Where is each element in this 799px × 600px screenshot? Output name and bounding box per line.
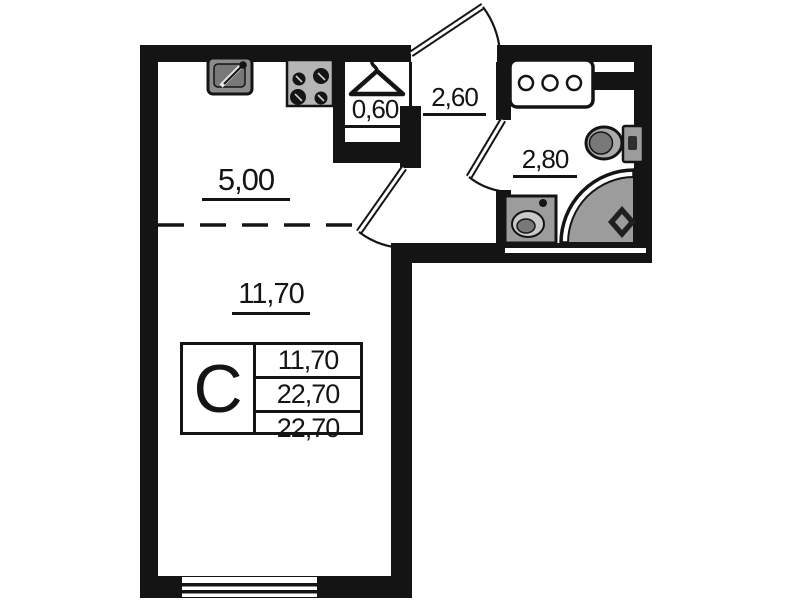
kitchen-zone-area-label: 5,00 <box>202 164 290 201</box>
wall-left <box>140 45 158 598</box>
window-opening <box>182 577 317 597</box>
stove-icon <box>287 60 333 106</box>
legend-value-total: 22,70 <box>256 376 360 410</box>
corner-shower-icon <box>561 170 636 243</box>
washbasin-icon <box>505 196 556 243</box>
legend-value-total-reduced: 22,70 <box>256 410 360 444</box>
entrance-door <box>411 6 500 54</box>
window <box>182 577 317 597</box>
legend-value-living: 11,70 <box>256 345 360 376</box>
wall-inner-stripe <box>505 248 646 253</box>
window-glazing-line <box>182 583 317 587</box>
wall-niche-stub <box>592 72 636 90</box>
bathroom-area-label: 2,80 <box>513 146 577 178</box>
hanger-icon <box>351 57 403 94</box>
toilet-icon <box>586 126 643 162</box>
wardrobe-area-label: 0,60 <box>344 96 406 128</box>
legend-values: 11,70 22,70 22,70 <box>256 345 360 432</box>
wall-right-main <box>391 243 412 598</box>
wall-top-main <box>140 45 411 62</box>
kitchen-sink-icon <box>208 58 252 94</box>
wall-wardrobe-bottom <box>333 142 406 163</box>
faucet-dot <box>239 61 247 69</box>
shelf-icon <box>510 60 636 107</box>
hallway-area-label: 2,60 <box>423 84 486 116</box>
area-legend-table: С 11,70 22,70 22,70 <box>180 342 363 435</box>
wardrobe-hallway-divider <box>409 62 412 108</box>
floor-plan: 5,00 11,70 0,60 2,60 2,80 С 11,70 22,70 … <box>0 0 799 600</box>
legend-type-symbol: С <box>183 345 256 432</box>
bathroom-door <box>469 120 503 191</box>
floor-plan-drawing <box>0 0 799 600</box>
room-door <box>359 168 404 248</box>
window-glazing-line <box>182 590 317 594</box>
basin-faucet-dot <box>539 199 547 207</box>
bathroom-door-swing-arc <box>469 177 500 191</box>
living-zone-area-label: 11,70 <box>232 280 310 315</box>
